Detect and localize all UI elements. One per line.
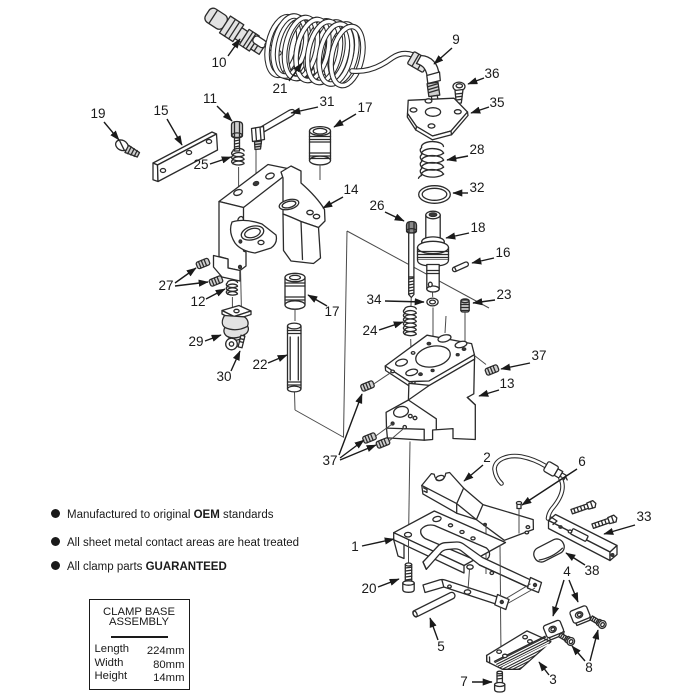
svg-text:3: 3 (549, 672, 557, 687)
svg-text:7: 7 (460, 674, 468, 689)
svg-text:34: 34 (366, 292, 382, 307)
svg-text:38: 38 (584, 563, 599, 578)
svg-text:10: 10 (211, 55, 226, 70)
svg-text:27: 27 (158, 278, 173, 293)
svg-text:21: 21 (272, 81, 287, 96)
svg-text:31: 31 (319, 94, 334, 109)
svg-text:1: 1 (351, 539, 359, 554)
svg-text:37: 37 (322, 453, 337, 468)
svg-text:37: 37 (531, 348, 546, 363)
svg-text:2: 2 (483, 450, 491, 465)
svg-text:14: 14 (343, 182, 359, 197)
svg-text:8: 8 (585, 660, 593, 675)
svg-text:15: 15 (153, 103, 168, 118)
svg-text:23: 23 (496, 287, 511, 302)
svg-text:24: 24 (362, 323, 378, 338)
svg-text:13: 13 (499, 376, 514, 391)
svg-text:29: 29 (188, 334, 203, 349)
svg-text:11: 11 (203, 91, 217, 106)
svg-text:36: 36 (484, 66, 499, 81)
svg-text:6: 6 (578, 454, 586, 469)
svg-text:19: 19 (90, 106, 105, 121)
svg-text:28: 28 (469, 142, 484, 157)
svg-text:20: 20 (361, 581, 376, 596)
svg-text:12: 12 (190, 294, 205, 309)
svg-text:35: 35 (489, 95, 504, 110)
svg-text:9: 9 (452, 32, 460, 47)
svg-text:17: 17 (357, 100, 372, 115)
svg-text:22: 22 (252, 357, 267, 372)
svg-text:25: 25 (193, 157, 208, 172)
svg-text:16: 16 (495, 245, 510, 260)
svg-text:18: 18 (470, 220, 485, 235)
svg-text:32: 32 (469, 180, 484, 195)
svg-text:33: 33 (636, 509, 651, 524)
svg-text:5: 5 (437, 639, 445, 654)
svg-text:4: 4 (563, 564, 571, 579)
svg-text:30: 30 (216, 369, 231, 384)
svg-text:26: 26 (369, 198, 384, 213)
